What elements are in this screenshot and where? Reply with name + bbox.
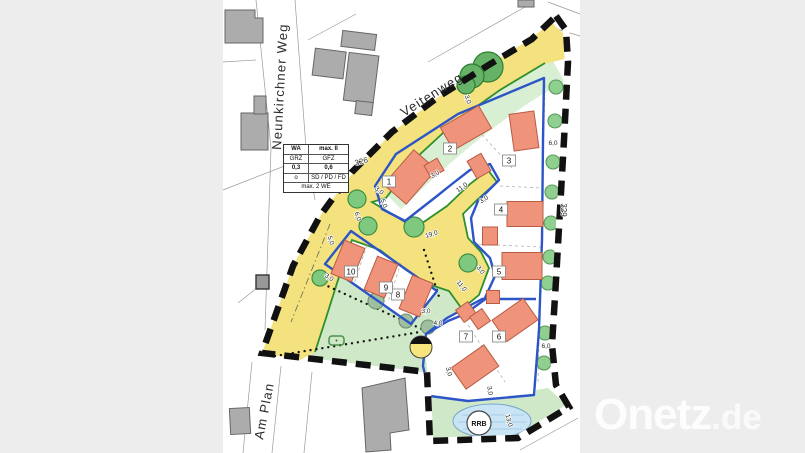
- lot-number: 2: [448, 145, 453, 154]
- lot-number: 3: [507, 157, 512, 166]
- dimension-label: 6,0: [548, 140, 557, 147]
- dimension-label: 4,0: [433, 320, 442, 327]
- legend-max-storeys: max. II: [309, 145, 348, 154]
- lot-number: 6: [497, 333, 502, 342]
- lot-number: 10: [347, 268, 356, 277]
- zoning-legend: WA max. II GRZ GFZ 0,3 0,6 o SD / PD / F…: [283, 144, 349, 193]
- site-plan-screenshot: RRB Neunkirchner Weg Veitenweg Am Plan 3…: [0, 0, 805, 453]
- legend-grz-label: GRZ: [284, 155, 309, 164]
- onetz-watermark: Onetz.de: [594, 390, 762, 440]
- lot-number: 5: [497, 268, 502, 277]
- watermark-tld: .de: [711, 398, 762, 437]
- legend-max-we: max. 2 WE: [284, 183, 348, 192]
- legend-gfz-value: 0,6: [309, 164, 348, 173]
- legend-roof-symbol: o: [284, 174, 309, 183]
- legend-wa: WA: [284, 145, 309, 154]
- dimension-label: 6,0: [541, 343, 550, 350]
- site-plan-map: RRB Neunkirchner Weg Veitenweg Am Plan 3…: [0, 0, 805, 453]
- watermark-brand: Onetz: [594, 390, 711, 439]
- rrb-label: RRB: [471, 421, 486, 428]
- legend-roof-types: SD / PD / FD: [309, 174, 348, 183]
- lot-number: 4: [499, 206, 504, 215]
- parcel-number-329: 329: [559, 203, 568, 217]
- bench-dot: [336, 340, 338, 342]
- lot-number: 9: [384, 284, 389, 293]
- dimension-label: 3,0: [421, 308, 430, 315]
- lot-number: 8: [396, 291, 401, 300]
- rrb-retention-pond: [453, 404, 531, 438]
- lot-number: 7: [464, 333, 469, 342]
- utility-box: [256, 275, 269, 289]
- lot-number: 1: [387, 178, 392, 187]
- legend-gfz-label: GFZ: [309, 155, 348, 164]
- legend-grz-value: 0,3: [284, 164, 309, 173]
